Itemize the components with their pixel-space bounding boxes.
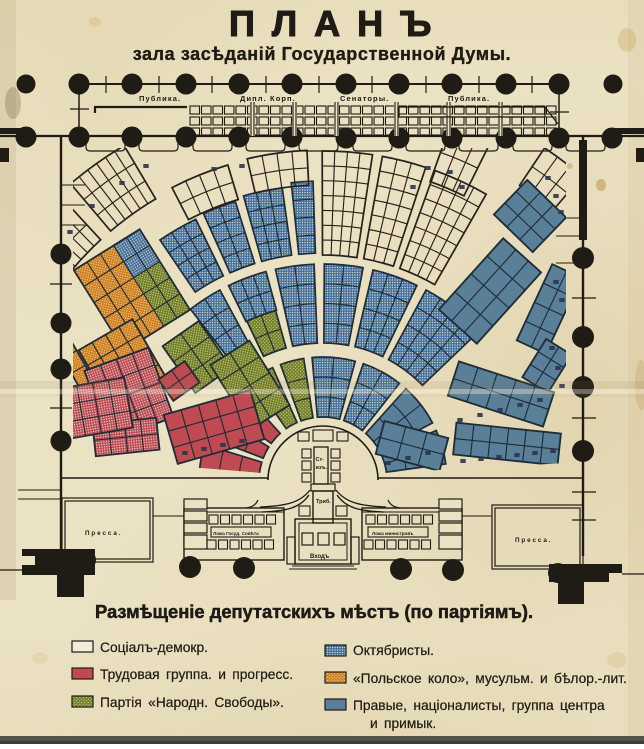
svg-text:и примык.: и примык.: [370, 716, 436, 731]
svg-text:Размѣщеніе депутатскихъ мѣстъ: Размѣщеніе депутатскихъ мѣстъ (по партія…: [95, 601, 533, 622]
svg-text:Входъ: Входъ: [310, 554, 330, 560]
svg-text:Ложа министровъ: Ложа министровъ: [372, 531, 414, 536]
svg-text:Триб.: Триб.: [316, 498, 331, 505]
svg-text:Сенаторы.: Сенаторы.: [340, 94, 389, 103]
svg-text:ПЛАНЪ: ПЛАНЪ: [229, 3, 448, 44]
svg-text:Трудовая группа. и прогресс.: Трудовая группа. и прогресс.: [100, 667, 293, 682]
svg-text:изъ.: изъ.: [316, 465, 328, 471]
svg-text:Ложа Госуд. Совѣта: Ложа Госуд. Совѣта: [213, 531, 259, 536]
svg-text:Пресса.: Пресса.: [85, 530, 122, 537]
svg-text:Ст-: Ст-: [316, 457, 325, 463]
svg-text:Дипл. Корп.: Дипл. Корп.: [240, 94, 296, 103]
svg-text:зала засѣданій Государственной: зала засѣданій Государственной Думы.: [133, 44, 512, 64]
svg-text:«Польское коло», мусульм. и бѣ: «Польское коло», мусульм. и бѣлор.-лит.: [353, 671, 627, 686]
svg-text:Правые, націоналисты, группа ц: Правые, націоналисты, группа центра: [353, 698, 605, 713]
svg-text:Октябристы.: Октябристы.: [353, 643, 434, 658]
svg-text:Публика.: Публика.: [139, 94, 181, 103]
svg-text:Пресса.: Пресса.: [515, 537, 552, 544]
svg-text:Публика.: Публика.: [448, 94, 490, 103]
svg-text:Соціалъ-демокр.: Соціалъ-демокр.: [100, 640, 208, 655]
svg-text:Партія «Народн. Свободы».: Партія «Народн. Свободы».: [100, 695, 284, 710]
